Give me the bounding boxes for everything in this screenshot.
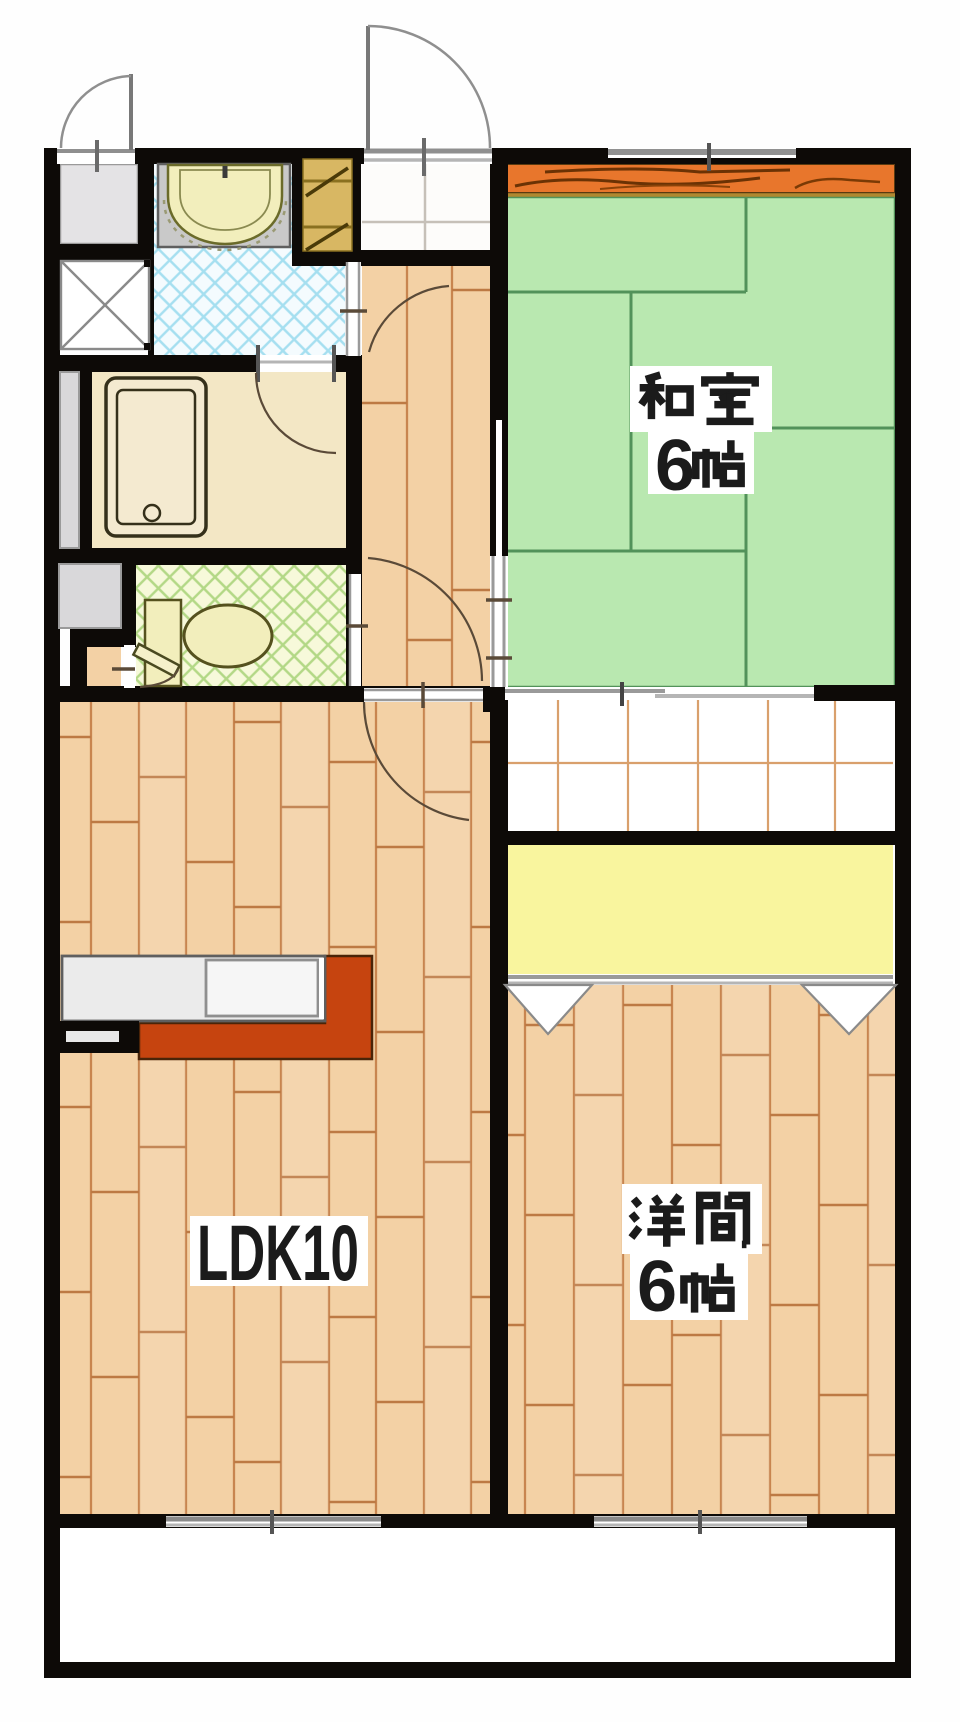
svg-text:6: 6 (655, 426, 695, 506)
svg-text:LDK10: LDK10 (197, 1208, 359, 1297)
svg-text:6: 6 (637, 1247, 677, 1327)
